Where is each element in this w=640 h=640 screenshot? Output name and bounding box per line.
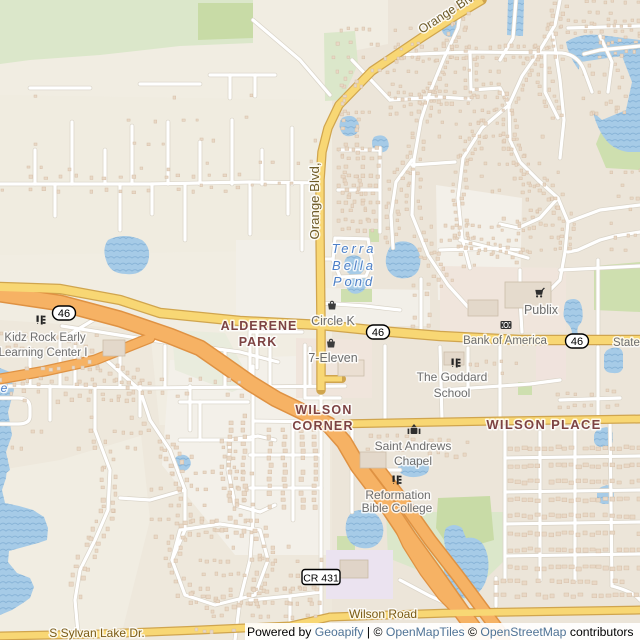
svg-text:46: 46 — [58, 308, 70, 320]
svg-text:WILSON PLACE: WILSON PLACE — [486, 417, 601, 432]
svg-text:Chapel: Chapel — [394, 454, 432, 468]
svg-text:State Road: State Road — [613, 337, 640, 349]
svg-text:PARK: PARK — [239, 335, 278, 349]
svg-text:Bank of America: Bank of America — [463, 335, 547, 347]
svg-text:Publix: Publix — [524, 303, 559, 317]
svg-text:WILSON: WILSON — [295, 403, 352, 417]
svg-text:Pond: Pond — [333, 274, 375, 289]
svg-text:46: 46 — [372, 327, 384, 339]
svg-text:The Goddard: The Goddard — [417, 370, 488, 384]
svg-text:Bible College: Bible College — [362, 501, 433, 515]
svg-text:ALDERENE: ALDERENE — [221, 319, 298, 333]
svg-text:46: 46 — [571, 336, 583, 348]
svg-text:School: School — [434, 386, 471, 400]
svg-text:CR 431: CR 431 — [303, 573, 339, 585]
svg-text:Saint Andrews: Saint Andrews — [375, 439, 452, 453]
svg-text:S Sylvan Lake Dr.: S Sylvan Lake Dr. — [49, 626, 144, 640]
svg-text:Orange Blvd,: Orange Blvd, — [307, 163, 322, 240]
svg-text:Terra: Terra — [332, 241, 377, 256]
svg-text:7-Eleven: 7-Eleven — [308, 351, 357, 365]
svg-text:Learning Center I: Learning Center I — [0, 347, 87, 359]
svg-text:e: e — [1, 381, 8, 395]
svg-text:Powered by Geoapify | © OpenMa: Powered by Geoapify | © OpenMapTiles © O… — [247, 625, 634, 639]
svg-text:Bella: Bella — [332, 258, 376, 273]
svg-text:Circle K: Circle K — [311, 314, 355, 328]
svg-text:Kidz Rock Early: Kidz Rock Early — [4, 332, 85, 344]
svg-text:Wilson Road: Wilson Road — [349, 607, 417, 621]
svg-text:CORNER: CORNER — [292, 419, 353, 433]
svg-text:Reformation: Reformation — [365, 488, 430, 502]
